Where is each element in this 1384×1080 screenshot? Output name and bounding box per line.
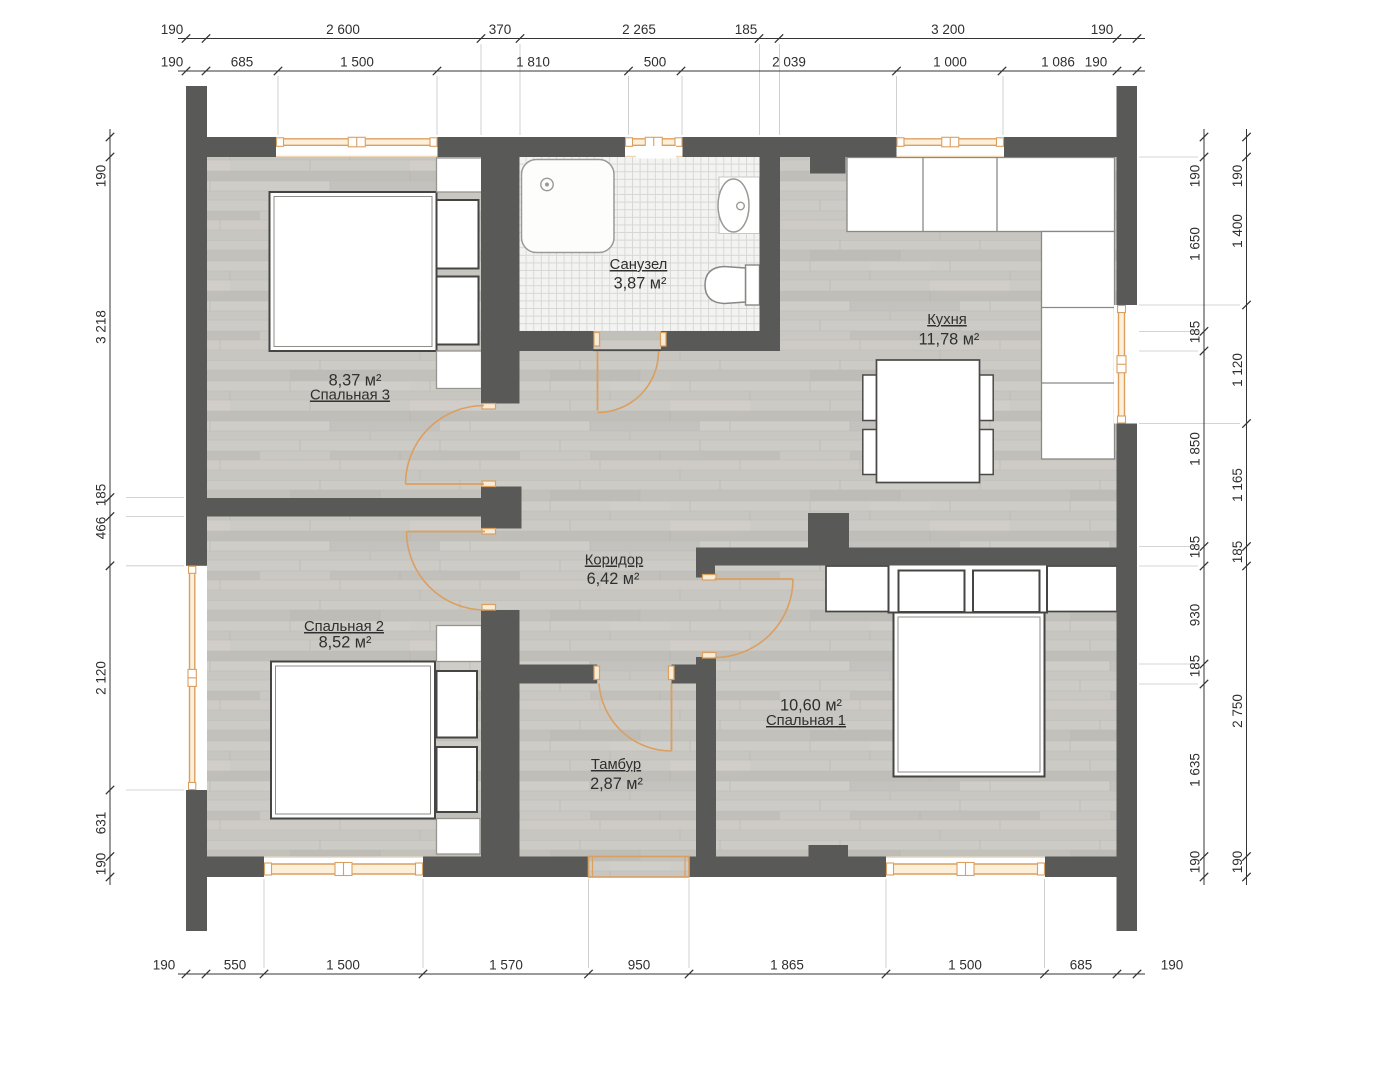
svg-text:631: 631: [94, 812, 109, 835]
svg-text:Спальная 1: Спальная 1: [766, 713, 846, 729]
svg-text:1 635: 1 635: [1188, 753, 1203, 787]
svg-text:190: 190: [161, 55, 184, 70]
svg-text:2,87 м²: 2,87 м²: [590, 775, 643, 793]
svg-text:185: 185: [94, 484, 109, 507]
svg-text:1 500: 1 500: [340, 55, 374, 70]
svg-text:Санузел: Санузел: [610, 257, 668, 273]
svg-text:1 810: 1 810: [516, 55, 550, 70]
svg-text:3,87 м²: 3,87 м²: [614, 275, 667, 293]
svg-text:185: 185: [1230, 541, 1245, 564]
svg-text:550: 550: [224, 958, 247, 973]
svg-text:190: 190: [153, 958, 176, 973]
svg-text:466: 466: [94, 517, 109, 540]
svg-text:1 000: 1 000: [933, 55, 967, 70]
svg-text:1 086: 1 086: [1041, 55, 1075, 70]
svg-text:8,52 м²: 8,52 м²: [319, 634, 372, 652]
svg-text:685: 685: [231, 55, 254, 70]
svg-text:930: 930: [1188, 604, 1203, 627]
svg-text:2 265: 2 265: [622, 22, 656, 37]
svg-text:185: 185: [1188, 655, 1203, 678]
svg-text:1 650: 1 650: [1188, 227, 1203, 261]
svg-text:185: 185: [1188, 536, 1203, 559]
svg-text:370: 370: [489, 22, 512, 37]
svg-text:Кухня: Кухня: [927, 312, 967, 328]
svg-text:1 570: 1 570: [489, 958, 523, 973]
svg-text:10,60 м²: 10,60 м²: [780, 697, 842, 715]
svg-text:500: 500: [644, 55, 667, 70]
svg-text:Спальная 3: Спальная 3: [310, 388, 390, 404]
svg-text:1 850: 1 850: [1188, 432, 1203, 466]
svg-text:190: 190: [1230, 165, 1245, 188]
svg-text:1 165: 1 165: [1230, 468, 1245, 502]
svg-text:2 750: 2 750: [1230, 694, 1245, 728]
svg-text:950: 950: [628, 958, 651, 973]
svg-text:190: 190: [1230, 851, 1245, 874]
svg-text:190: 190: [1161, 958, 1184, 973]
svg-text:190: 190: [1085, 55, 1108, 70]
svg-text:190: 190: [1091, 22, 1114, 37]
svg-text:2 600: 2 600: [326, 22, 360, 37]
svg-text:11,78 м²: 11,78 м²: [919, 331, 980, 349]
svg-text:1 400: 1 400: [1230, 214, 1245, 248]
svg-text:6,42 м²: 6,42 м²: [587, 570, 640, 588]
svg-text:190: 190: [161, 22, 184, 37]
svg-text:3 218: 3 218: [94, 310, 109, 344]
svg-text:2 039: 2 039: [772, 55, 806, 70]
svg-text:685: 685: [1070, 958, 1093, 973]
svg-text:185: 185: [735, 22, 758, 37]
svg-text:1 500: 1 500: [326, 958, 360, 973]
svg-text:190: 190: [1188, 165, 1203, 188]
svg-text:1 865: 1 865: [770, 958, 804, 973]
svg-text:3 200: 3 200: [931, 22, 965, 37]
svg-text:1 120: 1 120: [1230, 353, 1245, 387]
svg-text:2 120: 2 120: [94, 661, 109, 695]
svg-text:Тамбур: Тамбур: [591, 757, 641, 773]
svg-text:1 500: 1 500: [948, 958, 982, 973]
svg-text:Коридор: Коридор: [585, 553, 643, 569]
svg-text:185: 185: [1188, 321, 1203, 344]
svg-text:190: 190: [94, 165, 109, 188]
svg-text:190: 190: [1188, 851, 1203, 874]
svg-text:190: 190: [94, 853, 109, 876]
